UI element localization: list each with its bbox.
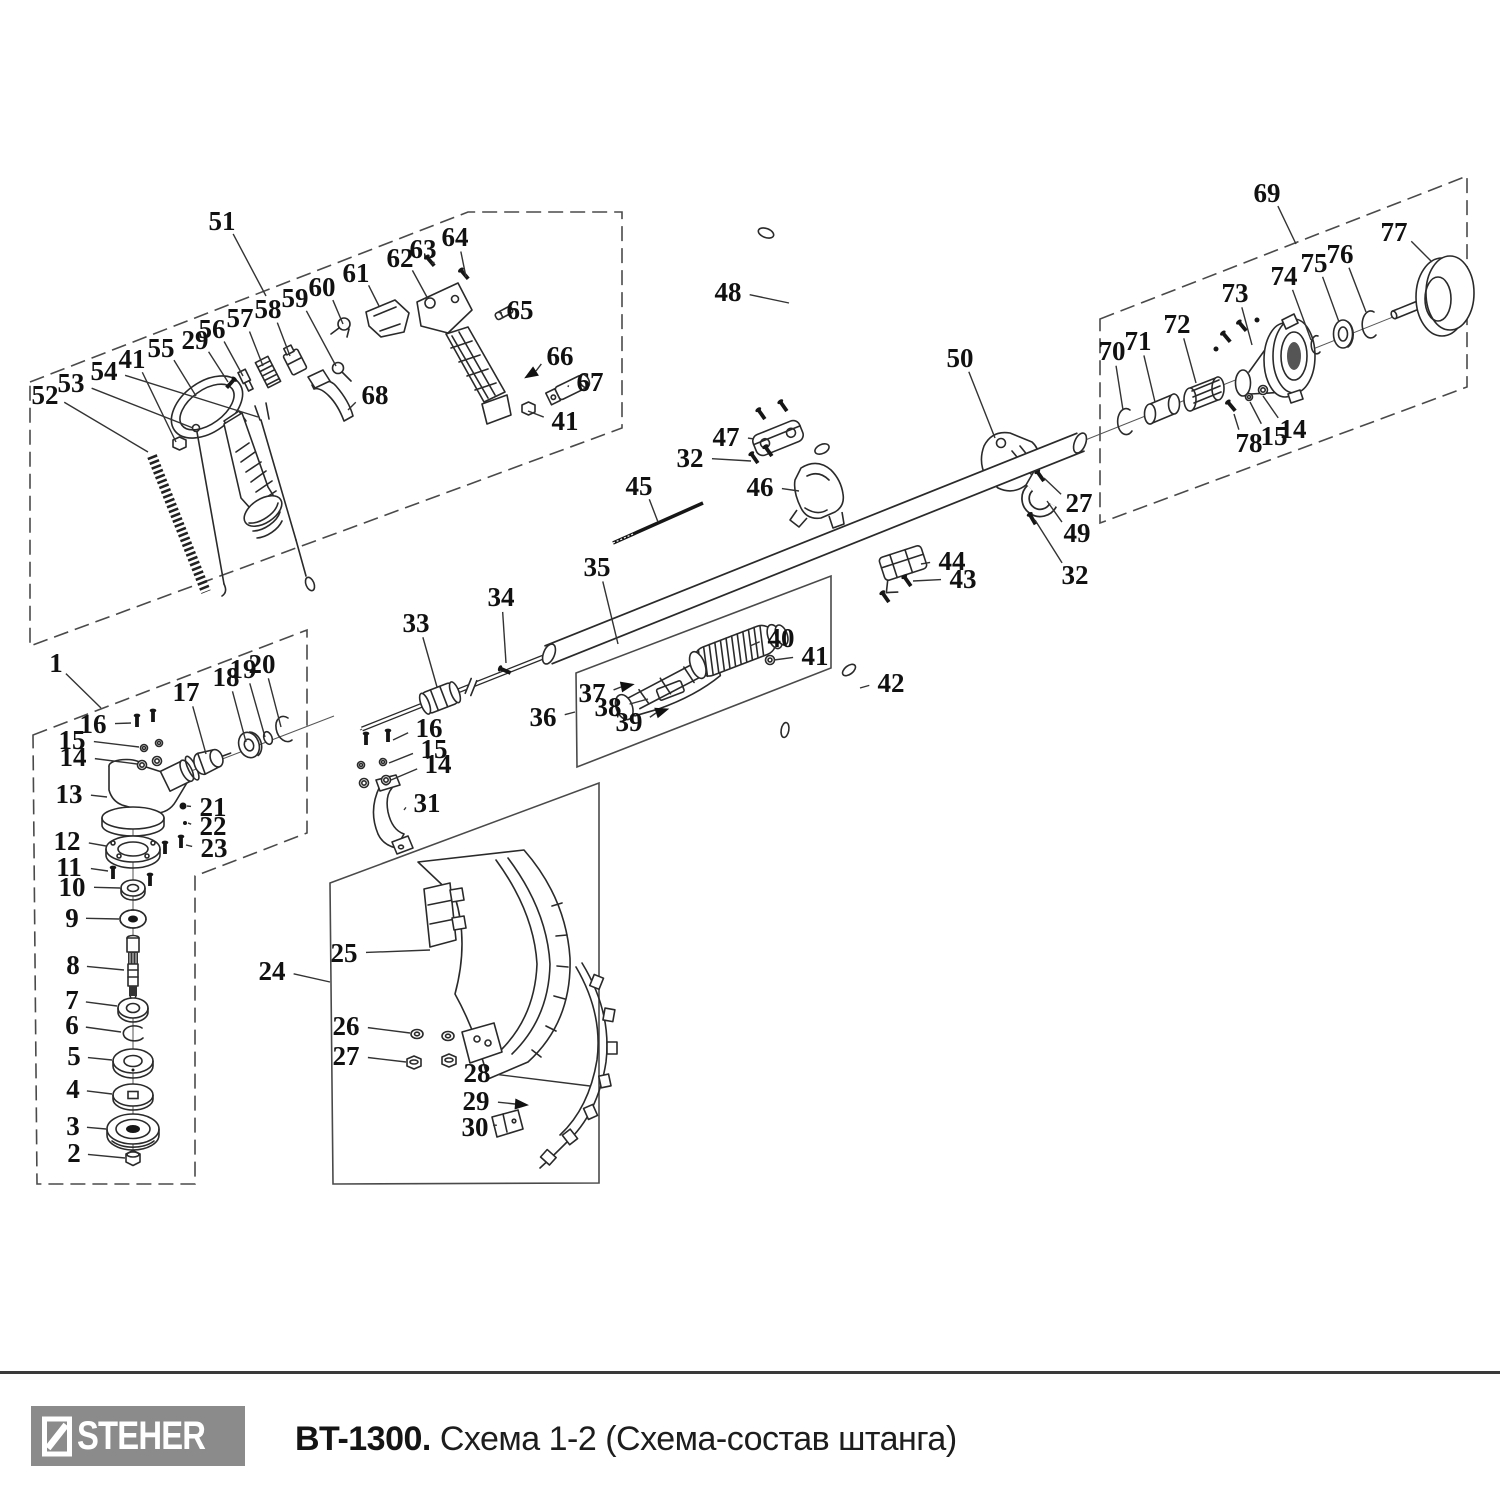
callout-number: 58	[255, 294, 282, 324]
callout-number: 14	[425, 749, 452, 779]
leader-line	[1144, 355, 1155, 402]
sheet-subtitle: Схема 1-2 (Схема-состав штанга)	[440, 1420, 957, 1458]
leader-line	[188, 823, 191, 824]
callout-61: 61	[343, 258, 380, 306]
leader-line	[568, 385, 569, 387]
leader-line	[913, 580, 941, 581]
callout-23: 23	[186, 833, 228, 863]
callout-47: 47	[713, 422, 755, 452]
arrow-screw-icon	[515, 1099, 529, 1110]
leader-line	[94, 742, 139, 747]
throttle-trigger-68	[308, 370, 353, 421]
leader-line	[423, 637, 437, 687]
leader-line	[389, 753, 413, 763]
leader-line	[94, 887, 120, 888]
callout-number: 2	[67, 1138, 81, 1168]
leader-line	[1323, 277, 1339, 322]
callout-number: 28	[464, 1058, 491, 1088]
callout-number: 52	[32, 380, 59, 410]
callout-number: 72	[1164, 309, 1191, 339]
callout-number: 68	[362, 380, 389, 410]
leader-line	[650, 713, 656, 717]
callout-17: 17	[173, 677, 207, 754]
throttle-wire-45	[613, 503, 703, 543]
callout-number: 74	[1271, 261, 1298, 291]
arrow-screw-icon	[654, 708, 669, 718]
bar-clamp-47	[751, 418, 806, 457]
leader-line	[333, 300, 343, 324]
bushing-71	[1145, 394, 1180, 424]
callout-number: 50	[947, 343, 974, 373]
leader-line	[87, 1091, 112, 1094]
screw-73-a	[1219, 329, 1233, 344]
callout-number: 69	[1254, 178, 1281, 208]
switch-58	[280, 343, 307, 375]
callout-number: 26	[333, 1011, 360, 1041]
washer-15-b	[156, 740, 163, 747]
screw-47-a	[754, 406, 767, 421]
callout-number: 77	[1381, 217, 1408, 247]
callout-46: 46	[747, 472, 800, 502]
leader-line	[366, 950, 430, 952]
cable-bracket-44	[876, 545, 932, 596]
callout-3: 3	[66, 1111, 106, 1141]
clip-30	[492, 1110, 523, 1137]
washer-14-d	[382, 776, 391, 785]
washer-14-b	[153, 757, 162, 766]
callout-number: 64	[442, 222, 469, 252]
nut-41-c	[766, 656, 775, 665]
screw-16-a	[134, 714, 141, 727]
washer-73-a	[1214, 347, 1219, 352]
callout-25: 25	[331, 938, 431, 968]
callout-number: 23	[201, 833, 228, 863]
washer-15-e	[1246, 394, 1253, 401]
callout-number: 30	[462, 1112, 489, 1142]
callout-68: 68	[348, 380, 389, 410]
callout-36: 36	[530, 702, 576, 732]
callout-number: 31	[414, 788, 441, 818]
callout-number: 47	[713, 422, 740, 452]
leader-line	[969, 372, 995, 438]
leader-line	[499, 1075, 590, 1086]
washer-14-c	[360, 779, 369, 788]
callout-number: 60	[309, 272, 336, 302]
callout-number: 43	[950, 564, 977, 594]
callout-number: 76	[1327, 239, 1354, 269]
model-number: BT-1300.	[295, 1420, 431, 1458]
screw-16-b	[150, 709, 157, 722]
page: 5152535441552956575859606162636465666768…	[0, 0, 1500, 1500]
leader-line	[498, 1102, 515, 1104]
callout-69: 69	[1254, 178, 1297, 244]
leader-line	[233, 234, 266, 296]
washer-73-b	[1255, 318, 1260, 323]
callout-number: 13	[56, 779, 83, 809]
leader-line	[64, 402, 148, 452]
housing-62	[417, 283, 511, 424]
leader-line	[712, 459, 751, 461]
callout-9: 9	[65, 903, 119, 933]
leader-line	[174, 360, 196, 396]
bevel-gear-17	[191, 743, 234, 777]
screw-47-b	[776, 398, 789, 413]
bar-bracket-46	[790, 463, 844, 528]
leader-line	[193, 706, 206, 754]
callout-66: 66	[524, 341, 573, 378]
callout-1: 1	[49, 648, 101, 708]
callout-8: 8	[66, 950, 124, 980]
leader-line	[369, 285, 379, 306]
callout-64: 64	[442, 222, 469, 277]
callout-24: 24	[259, 956, 331, 986]
screw-16-c	[363, 732, 370, 745]
screw-21-t	[180, 803, 187, 810]
callout-number: 73	[1222, 278, 1249, 308]
clutch-drum-77	[1390, 256, 1474, 336]
callout-71: 71	[1125, 326, 1156, 402]
callout-number: 61	[343, 258, 370, 288]
callout-number: 66	[547, 341, 574, 371]
leader-line	[404, 807, 406, 810]
leader-line	[412, 270, 428, 299]
callout-number: 41	[552, 406, 579, 436]
washer-15-c	[358, 762, 365, 769]
leader-line	[503, 612, 506, 663]
leader-line	[391, 769, 417, 780]
callout-number: 57	[227, 303, 254, 333]
callout-number: 65	[507, 295, 534, 325]
callout-34: 34	[488, 582, 515, 663]
callout-number: 14	[60, 742, 87, 772]
callout-20: 20	[249, 649, 282, 727]
callout-45: 45	[626, 471, 659, 522]
leader-line	[1035, 520, 1062, 563]
screw-78-t	[1224, 398, 1238, 413]
callout-76: 76	[1327, 239, 1367, 312]
bracket-31	[373, 775, 413, 854]
leader-line	[393, 733, 408, 740]
leader-line	[614, 687, 621, 690]
leader-line	[1349, 268, 1366, 312]
callout-number: 56	[199, 314, 226, 344]
leader-line	[294, 974, 330, 982]
callout-number: 8	[66, 950, 80, 980]
callout-number: 45	[626, 471, 653, 501]
callout-number: 32	[677, 443, 704, 473]
exploded-parts-diagram: 5152535441552956575859606162636465666768…	[0, 0, 1500, 1500]
leader-line	[89, 843, 106, 846]
callout-31: 31	[404, 788, 441, 818]
leader-line	[92, 388, 193, 428]
callout-number: 71	[1125, 326, 1152, 356]
callout-number: 27	[333, 1041, 360, 1071]
callout-26: 26	[333, 1011, 411, 1041]
callout-number: 39	[616, 707, 643, 737]
callout-number: 5	[67, 1041, 81, 1071]
callout-number: 40	[768, 623, 795, 653]
screw-43-b	[878, 589, 891, 604]
leader-line	[115, 723, 131, 724]
callout-51: 51	[209, 206, 267, 296]
arrow-screw-icon	[524, 366, 539, 378]
callout-number: 32	[1062, 560, 1089, 590]
callout-6: 6	[65, 1010, 121, 1040]
callout-number: 54	[91, 356, 118, 386]
callout-number: 10	[59, 872, 86, 902]
callout-number: 34	[488, 582, 515, 612]
spool-cup-3	[107, 1114, 159, 1150]
leader-line	[1116, 366, 1123, 410]
spindle-8	[127, 936, 139, 1004]
callout-number: 78	[1236, 428, 1263, 458]
callout-number: 33	[403, 608, 430, 638]
callout-number: 63	[410, 234, 437, 264]
callout-number: 27	[1066, 488, 1093, 518]
callout-number: 20	[249, 649, 276, 679]
callout-10: 10	[59, 872, 121, 902]
callout-number: 14	[1280, 414, 1307, 444]
loop-handle-42	[780, 662, 882, 744]
leaf-plate-57	[255, 356, 280, 387]
screw-16-d	[385, 729, 392, 742]
callout-number: 3	[66, 1111, 80, 1141]
washer-15-d	[380, 759, 387, 766]
callout-number: 70	[1099, 336, 1126, 366]
callout-13: 13	[56, 779, 108, 809]
callout-50: 50	[947, 343, 996, 438]
leader-line	[91, 869, 108, 871]
washer-15-a	[141, 745, 148, 752]
screw-23-u	[162, 841, 169, 854]
callout-60: 60	[309, 272, 344, 324]
leader-line	[649, 499, 658, 522]
leader-line	[86, 1002, 117, 1006]
leader-line	[1044, 478, 1061, 494]
pinion-9	[120, 910, 146, 928]
callout-5: 5	[67, 1041, 112, 1071]
callout-number: 24	[259, 956, 286, 986]
leader-line	[91, 795, 107, 797]
leader-line	[1263, 396, 1278, 418]
leader-line	[368, 1057, 406, 1062]
leader-line	[88, 1154, 125, 1158]
callout-number: 41	[802, 641, 829, 671]
callout-number: 6	[65, 1010, 79, 1040]
leader-line	[774, 657, 793, 660]
callout-number: 67	[577, 367, 604, 397]
washer-26-b	[442, 1032, 454, 1041]
nut-2	[126, 1151, 140, 1166]
washer-14-a	[138, 761, 147, 770]
callout-number: 42	[878, 668, 905, 698]
callout-52: 52	[32, 380, 149, 452]
leader-line	[1184, 338, 1196, 383]
leader-line	[87, 966, 124, 970]
callout-39: 39	[616, 707, 670, 737]
callout-53: 53	[58, 368, 194, 428]
callout-70: 70	[1099, 336, 1126, 410]
leader-line	[268, 678, 281, 727]
leader-line	[86, 918, 119, 919]
leader-line	[250, 332, 263, 366]
shaft-clamp-33	[417, 681, 462, 716]
callout-number: 17	[173, 677, 200, 707]
callout-72: 72	[1164, 309, 1197, 383]
clamp-half-49	[1026, 488, 1053, 513]
callout-number: 36	[530, 702, 557, 732]
cable-53	[193, 425, 226, 597]
callout-number: 1	[49, 648, 63, 678]
steher-logo: STEHER	[31, 1406, 245, 1466]
callout-number: 55	[148, 333, 175, 363]
leader-line	[232, 691, 246, 742]
pin-22-t	[183, 821, 187, 825]
callout-number: 75	[1301, 248, 1328, 278]
leader-line	[88, 1058, 112, 1060]
callout-33: 33	[403, 608, 438, 687]
screw-11-u	[147, 873, 154, 886]
leader-line	[1411, 241, 1432, 262]
callout-number: 48	[715, 277, 742, 307]
leader-line	[565, 712, 575, 715]
spring-52	[152, 456, 206, 592]
callout-number: 53	[58, 368, 85, 398]
bearing-75	[1334, 320, 1354, 348]
callout-number: 35	[584, 552, 611, 582]
spline-sleeve-72	[1184, 377, 1224, 411]
leader-line	[87, 1127, 106, 1129]
leader-line	[86, 1027, 121, 1032]
leader-line	[498, 312, 502, 313]
leader-line	[368, 1028, 410, 1033]
trigger-lock-61	[366, 300, 409, 337]
callout-4: 4	[66, 1074, 112, 1104]
leader-line	[277, 323, 290, 356]
nut-27-b	[407, 1056, 421, 1069]
callout-number: 46	[747, 472, 774, 502]
leader-line	[66, 674, 101, 708]
bearing-7	[118, 998, 148, 1022]
leader-line	[748, 438, 754, 439]
callout-number: 49	[1064, 518, 1091, 548]
washer-14-e	[1259, 386, 1268, 395]
callout-number: 51	[209, 206, 236, 236]
leader-line	[750, 295, 789, 303]
callout-number: 4	[66, 1074, 80, 1104]
leader-line	[250, 683, 265, 737]
cup-washer-5	[113, 1049, 153, 1078]
callout-27: 27	[333, 1041, 407, 1071]
leader-line	[186, 845, 192, 846]
callout-77: 77	[1381, 217, 1433, 262]
sheet-title: BT-1300. Схема 1-2 (Схема-состав штанга)	[295, 1420, 957, 1459]
leader-line	[224, 342, 243, 376]
guard-25	[418, 850, 570, 1079]
leader-line	[536, 364, 541, 371]
circlip-70	[1118, 409, 1132, 435]
leader-line	[306, 311, 336, 366]
screw-11-t	[110, 866, 117, 879]
callout-78: 78	[1234, 414, 1263, 458]
washer-4	[113, 1084, 153, 1110]
nut-27-c	[442, 1054, 456, 1067]
screw-23-t	[178, 835, 185, 848]
leader-line	[1278, 206, 1296, 244]
callout-2: 2	[67, 1138, 125, 1168]
callout-number: 59	[282, 283, 309, 313]
ring-60	[331, 318, 350, 337]
washer-26-a	[411, 1030, 423, 1039]
callout-number: 9	[65, 903, 79, 933]
brand-name: STEHER	[77, 1416, 205, 1456]
arrow-screw-icon	[620, 682, 635, 693]
footer-divider	[0, 1371, 1500, 1374]
callout-number: 25	[331, 938, 358, 968]
callouts-layer: 5152535441552956575859606162636465666768…	[32, 178, 1433, 1168]
leader-line	[142, 372, 176, 442]
callout-63: 63	[410, 234, 437, 264]
callout-16: 16	[80, 709, 132, 739]
steher-logo-icon	[42, 1416, 72, 1457]
callout-number: 41	[119, 344, 146, 374]
callout-48: 48	[715, 277, 790, 307]
